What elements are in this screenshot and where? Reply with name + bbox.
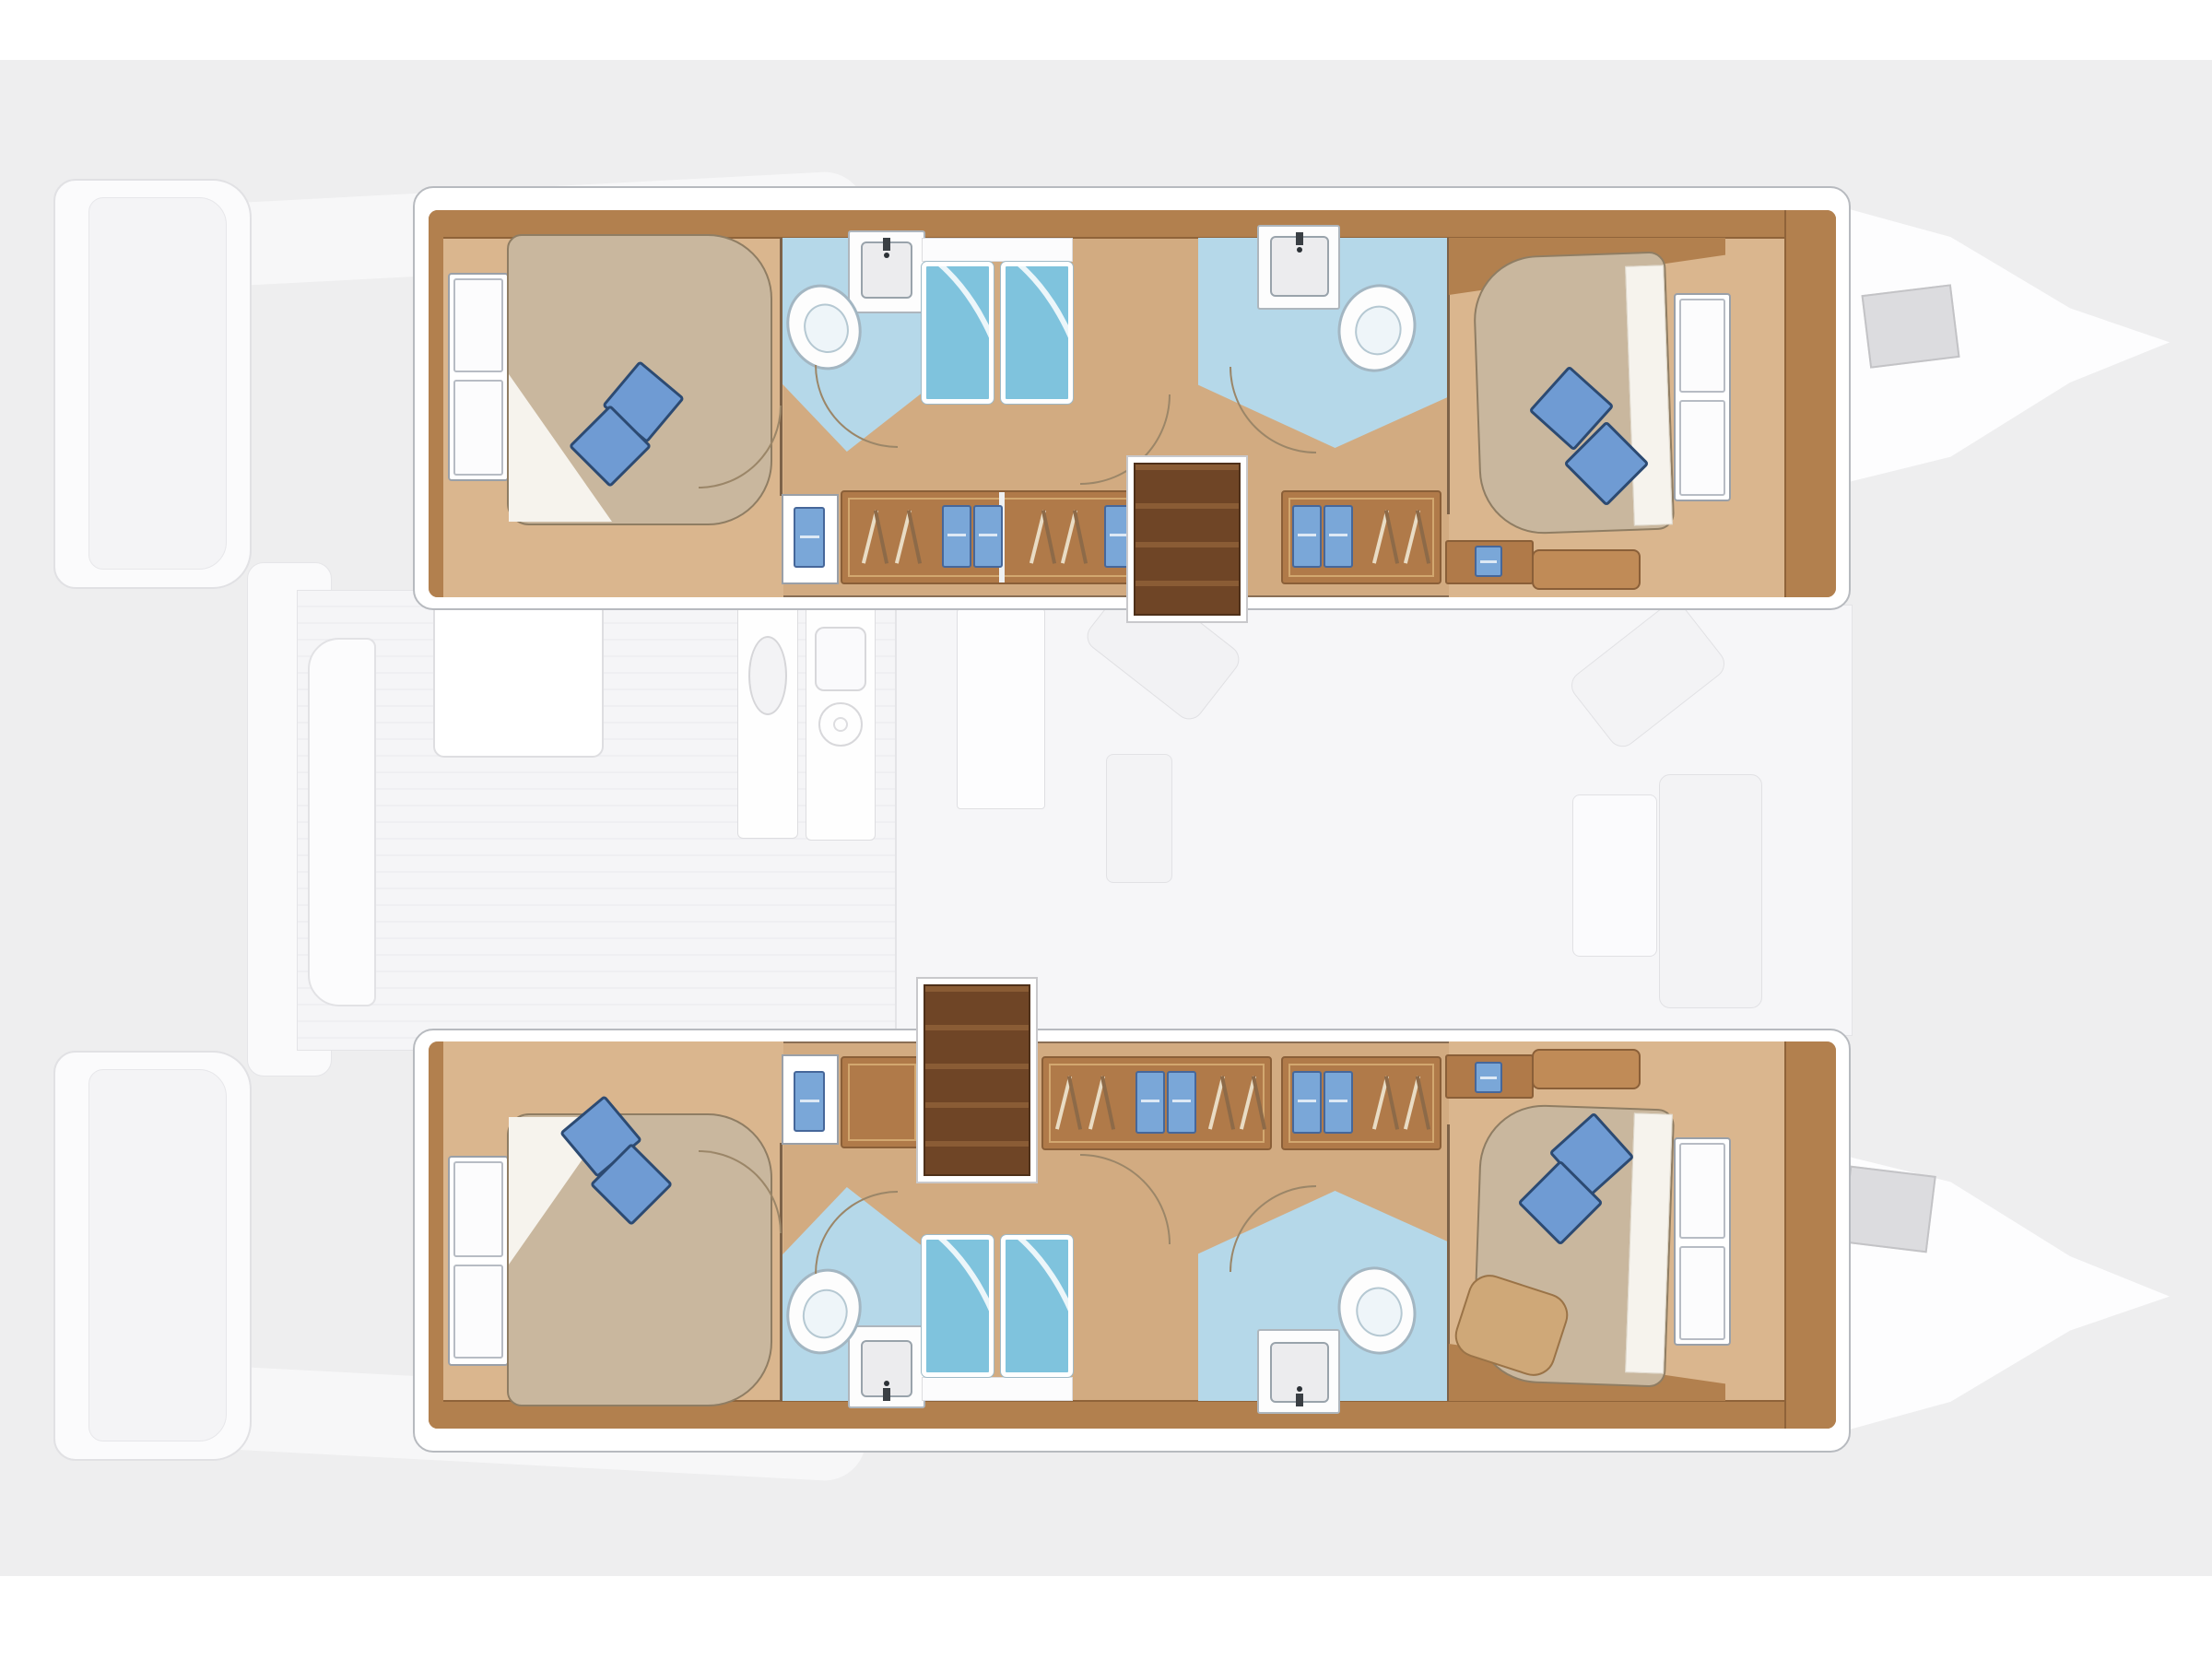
- port-aft-head-sink-drain-icon: [884, 253, 889, 258]
- port-towel-4-fold-line: [1298, 534, 1316, 536]
- stbd-fwd-head-toilet-bowl: [1350, 1281, 1409, 1342]
- port-hanger-6: [1405, 503, 1432, 571]
- port-low-cabinet-towel: [1475, 546, 1502, 577]
- stbd-companionway-stairs: [924, 984, 1030, 1176]
- port-wall-aft-cabin: [780, 238, 782, 496]
- stbd-stern-trim-band: [429, 1041, 443, 1429]
- port-hanger-1-item-2: [874, 511, 888, 565]
- stbd-locker-towel: [794, 1071, 825, 1132]
- stern-platform-port-inner: [88, 197, 227, 570]
- stbd-towel-4: [1324, 1071, 1353, 1134]
- galley-sink: [748, 636, 787, 715]
- port-shower-fwd: [1001, 262, 1073, 404]
- stbd-locker-towel-fold-line: [800, 1100, 819, 1102]
- port-fwd-head-sink-faucet-icon: [1296, 232, 1303, 245]
- port-low-cabinet-towel-fold-line: [1480, 560, 1497, 563]
- port-locker-towel-fold-line: [800, 535, 819, 538]
- port-hanger-3: [1030, 503, 1058, 571]
- stbd-hanger-5-item-2: [1384, 1077, 1399, 1131]
- port-fwd-closet-door-2: [1679, 400, 1725, 496]
- port-shower-aft-spray-icon: [922, 262, 994, 404]
- port-shower-aft: [922, 262, 994, 404]
- stbd-hanger-5: [1373, 1069, 1401, 1137]
- stbd-towel-2-fold-line: [1172, 1100, 1191, 1102]
- port-fwd-head-sink-drain-icon: [1297, 247, 1302, 253]
- stbd-hanger-2: [1089, 1069, 1117, 1137]
- stbd-towel-1-fold-line: [1141, 1100, 1159, 1102]
- stbd-hanger-1: [1056, 1069, 1084, 1137]
- stbd-fwd-closet-door-1: [1679, 1143, 1725, 1239]
- port-fwd-head-sink: [1270, 236, 1329, 297]
- stbd-hanger-2-item-2: [1100, 1077, 1115, 1131]
- stbd-fwd-head-sink-faucet-icon: [1296, 1394, 1303, 1406]
- stbd-fwd-seat: [1532, 1049, 1641, 1089]
- port-towel-1-fold-line: [947, 534, 966, 536]
- stbd-shower-fwd: [1001, 1235, 1073, 1377]
- stbd-shower-fwd-spray-icon: [1001, 1235, 1073, 1377]
- port-towel-5-fold-line: [1329, 534, 1347, 536]
- stbd-towel-4-fold-line: [1329, 1100, 1347, 1102]
- stbd-aft-head-sink-drain-icon: [884, 1381, 889, 1386]
- port-shower-wall: [922, 238, 1073, 262]
- port-stern-trim-band: [429, 210, 443, 597]
- port-hanger-5-item-2: [1384, 511, 1399, 565]
- stbd-wall-aft-cabin: [780, 1143, 782, 1401]
- stbd-low-cabinet-towel-fold-line: [1480, 1077, 1497, 1079]
- bow-port-hatch: [1861, 284, 1959, 368]
- port-hanger-2: [896, 503, 924, 571]
- port-shower-fwd-spray-icon: [1001, 262, 1073, 404]
- stbd-hanger-4-item-2: [1252, 1077, 1266, 1131]
- port-hanger-5: [1373, 503, 1401, 571]
- port-companionway-stairs: [1134, 463, 1241, 616]
- port-towel-1: [942, 505, 971, 568]
- stbd-towel-2: [1167, 1071, 1196, 1134]
- port-hanger-4-item-2: [1073, 511, 1088, 565]
- dinette-table: [1572, 794, 1657, 957]
- port-aft-head-toilet-bowl: [797, 298, 854, 359]
- stbd-hanger-4: [1241, 1069, 1268, 1137]
- port-hanger-3-item-2: [1041, 511, 1056, 565]
- stbd-hanger-6: [1405, 1069, 1432, 1137]
- port-aft-head-sink-faucet-icon: [883, 238, 890, 251]
- stbd-low-cabinet-towel: [1475, 1062, 1502, 1093]
- stbd-bow-trim-band: [1786, 1041, 1836, 1429]
- stbd-shower-wall: [922, 1377, 1073, 1401]
- port-fwd-closet-door-1: [1679, 299, 1725, 393]
- stbd-towel-3-fold-line: [1298, 1100, 1316, 1102]
- stbd-fwd-head-sink-drain-icon: [1297, 1386, 1302, 1392]
- stbd-aft-head-toilet-bowl: [796, 1284, 853, 1345]
- galley-burner-dot: [833, 717, 848, 732]
- port-hanger-2-item-2: [907, 511, 922, 565]
- port-locker-towel: [794, 507, 825, 568]
- port-towel-2: [973, 505, 1003, 568]
- stbd-aft-head-sink-faucet-icon: [883, 1388, 890, 1401]
- port-aft-closet-door-2: [453, 380, 503, 476]
- port-hanger-1: [863, 503, 890, 571]
- galley-fridge: [815, 627, 866, 691]
- stbd-towel-1: [1135, 1071, 1165, 1134]
- stbd-aft-head-sink: [861, 1340, 912, 1397]
- port-bow-trim-line: [1784, 210, 1786, 597]
- port-fwd-head-toilet-bowl: [1348, 300, 1407, 360]
- port-towel-3-fold-line: [1110, 534, 1128, 536]
- port-hanger-4: [1062, 503, 1089, 571]
- stbd-fwd-closet-door-2: [1679, 1246, 1725, 1340]
- stbd-aft-closet-door-2: [453, 1265, 503, 1359]
- port-towel-2-fold-line: [979, 534, 997, 536]
- stbd-towel-3: [1292, 1071, 1322, 1134]
- port-fwd-seat: [1532, 549, 1641, 590]
- stbd-fwd-head-sink: [1270, 1342, 1329, 1403]
- stbd-hanger-3: [1209, 1069, 1237, 1137]
- stbd-hanger-6-item-2: [1416, 1077, 1430, 1131]
- stbd-aft-closet-door-1: [453, 1161, 503, 1257]
- port-aft-head-sink: [861, 241, 912, 299]
- cockpit-bench: [308, 638, 376, 1006]
- saloon-mid-bench: [1106, 754, 1172, 883]
- stbd-shower-aft: [922, 1235, 994, 1377]
- port-towel-4: [1292, 505, 1322, 568]
- stern-platform-starboard-inner: [88, 1069, 227, 1441]
- bow-starboard-hatch: [1841, 1166, 1936, 1253]
- stbd-shower-aft-spray-icon: [922, 1235, 994, 1377]
- port-aft-closet-door-1: [453, 278, 503, 372]
- stbd-hanger-1-item-2: [1067, 1077, 1082, 1131]
- stbd-hanger-3-item-2: [1220, 1077, 1235, 1131]
- port-hanger-6-item-2: [1416, 511, 1430, 565]
- catamaran-floor-plan: [0, 0, 2212, 1659]
- port-bow-trim-band: [1786, 210, 1836, 597]
- stbd-bow-trim-line: [1784, 1041, 1786, 1429]
- port-towel-5: [1324, 505, 1353, 568]
- galley-island: [957, 608, 1045, 809]
- dinette-bench: [1659, 774, 1762, 1008]
- stbd-wardrobe-aft-frame: [848, 1064, 916, 1141]
- cockpit-table: [433, 599, 604, 758]
